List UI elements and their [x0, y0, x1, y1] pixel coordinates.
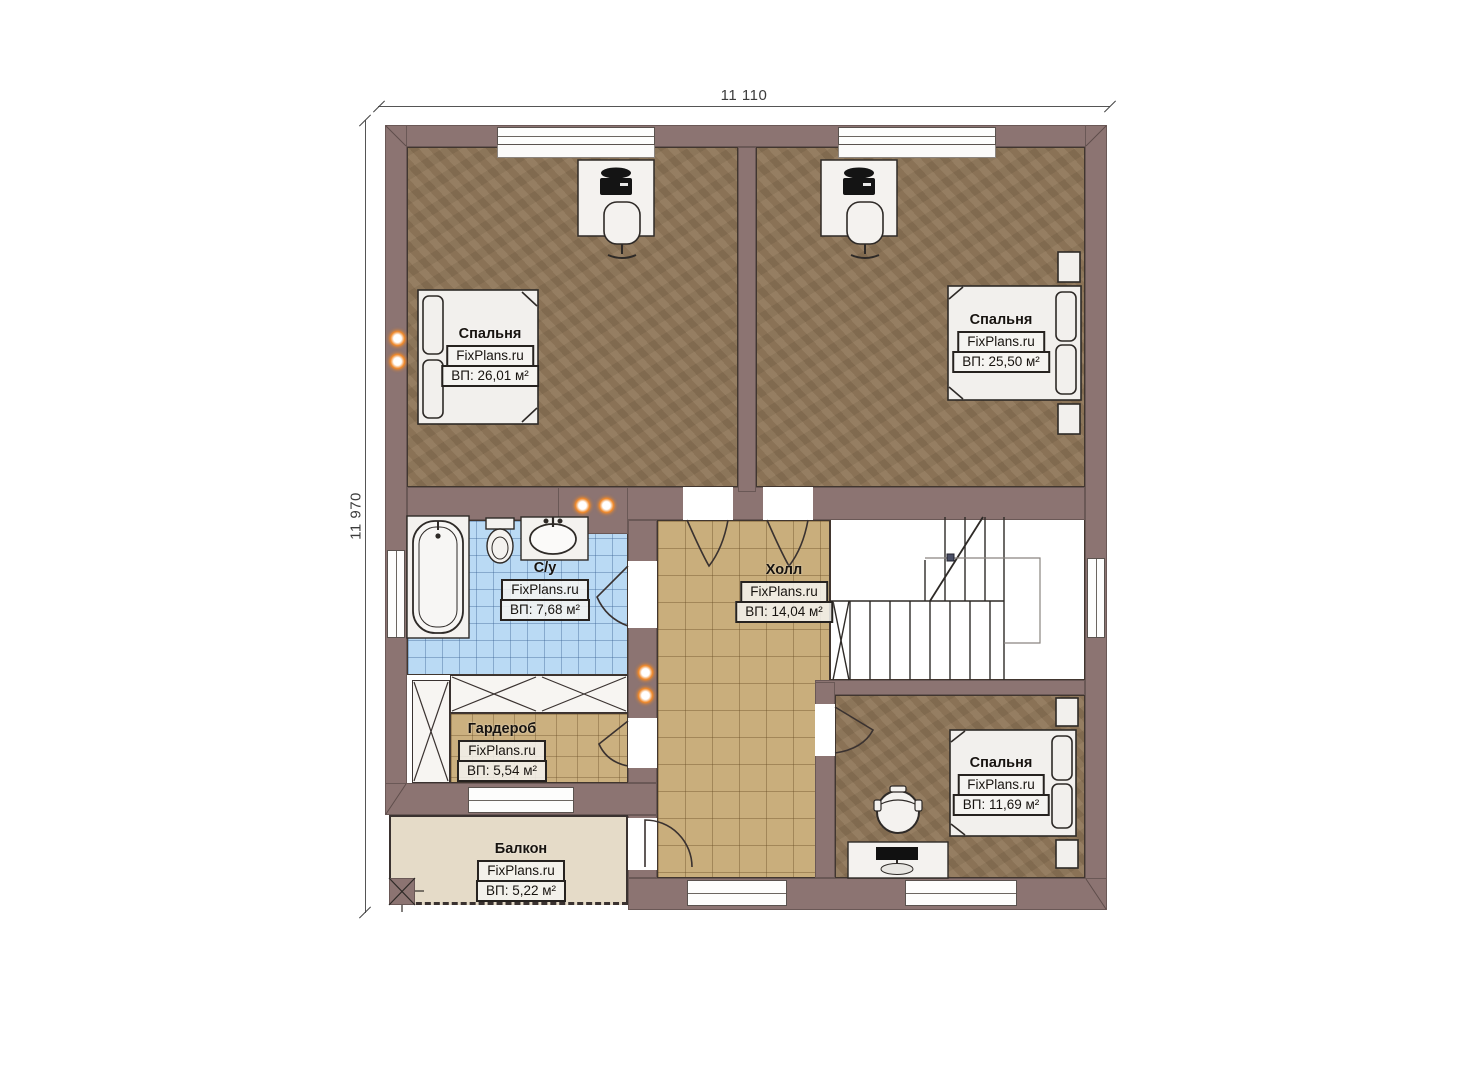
- room-name: Спальня: [459, 326, 522, 342]
- room-brand: FixPlans.ru: [458, 740, 546, 762]
- window-bottom-hall: [687, 880, 787, 906]
- floor-stairwell: [830, 517, 1085, 680]
- room-label-balcony: Балкон FixPlans.ru ВП: 5,22 м²: [476, 841, 566, 902]
- wall-bedroom3-top: [815, 680, 1085, 695]
- ceiling-light: [637, 664, 654, 681]
- dimension-line-left: [365, 120, 366, 913]
- wall-light-niche: [558, 487, 628, 534]
- room-name: Гардероб: [468, 721, 537, 737]
- dimension-width-label: 11 110: [721, 87, 768, 104]
- dimension-line-top: [378, 106, 1110, 107]
- ceiling-light: [598, 497, 615, 514]
- ceiling-light: [637, 687, 654, 704]
- room-brand: FixPlans.ru: [957, 774, 1045, 796]
- wall-top: [385, 125, 1107, 147]
- dimension-height-label: 11 970: [348, 492, 365, 540]
- room-name: С/у: [534, 560, 557, 576]
- room-area: ВП: 5,22 м²: [476, 880, 566, 902]
- wall-between-bedrooms: [738, 147, 756, 492]
- door-opening-bedroom-top-right: [763, 487, 813, 520]
- ceiling-light: [574, 497, 591, 514]
- window-bottom-bedroom: [905, 880, 1017, 906]
- room-brand: FixPlans.ru: [501, 579, 589, 601]
- door-opening-wardrobe: [628, 718, 657, 768]
- ceiling-light: [389, 330, 406, 347]
- wall-right: [1085, 125, 1107, 910]
- room-label-bedroom-bottom: Спальня FixPlans.ru ВП: 11,69 м²: [953, 755, 1050, 816]
- room-area: ВП: 14,04 м²: [735, 601, 833, 623]
- window-top-right: [838, 127, 996, 145]
- room-name: Балкон: [495, 841, 547, 857]
- floor-bedroom-top-left: [407, 147, 738, 487]
- door-opening-bedroom-bottom: [815, 704, 835, 756]
- room-area: ВП: 25,50 м²: [952, 351, 1050, 373]
- room-area: ВП: 5,54 м²: [457, 760, 547, 782]
- room-area: ВП: 7,68 м²: [500, 599, 590, 621]
- door-opening-balcony: [628, 818, 657, 870]
- room-brand: FixPlans.ru: [957, 331, 1045, 353]
- window-right-stairs: [1087, 558, 1105, 638]
- room-label-bedroom-top-left: Спальня FixPlans.ru ВП: 26,01 м²: [441, 326, 539, 387]
- window-wardrobe-balcony: [468, 787, 574, 813]
- ceiling-light: [389, 353, 406, 370]
- door-opening-bedroom-top-left: [683, 487, 733, 520]
- door-opening-bathroom: [628, 561, 657, 628]
- room-label-bathroom: С/у FixPlans.ru ВП: 7,68 м²: [500, 560, 590, 621]
- window-sill-top-left: [497, 145, 655, 158]
- window-left-bathroom: [387, 550, 405, 638]
- room-brand: FixPlans.ru: [446, 345, 534, 367]
- room-area: ВП: 26,01 м²: [441, 365, 539, 387]
- room-name: Спальня: [970, 312, 1033, 328]
- wall-left: [385, 125, 407, 815]
- room-name: Холл: [766, 562, 802, 578]
- room-brand: FixPlans.ru: [740, 581, 828, 603]
- room-label-bedroom-top-right: Спальня FixPlans.ru ВП: 25,50 м²: [952, 312, 1050, 373]
- room-label-hall: Холл FixPlans.ru ВП: 14,04 м²: [735, 562, 833, 623]
- room-brand: FixPlans.ru: [477, 860, 565, 882]
- balcony-post: [389, 878, 415, 905]
- wardrobe-cabinet-top: [450, 675, 628, 713]
- room-label-wardrobe: Гардероб FixPlans.ru ВП: 5,54 м²: [457, 721, 547, 782]
- room-area: ВП: 11,69 м²: [953, 794, 1050, 816]
- wardrobe-cabinet-left: [412, 680, 450, 783]
- window-top-left: [497, 127, 655, 145]
- floor-plan-canvas: 11 110 11 970: [0, 0, 1473, 1080]
- window-sill-top-right: [838, 145, 996, 158]
- room-name: Спальня: [970, 755, 1033, 771]
